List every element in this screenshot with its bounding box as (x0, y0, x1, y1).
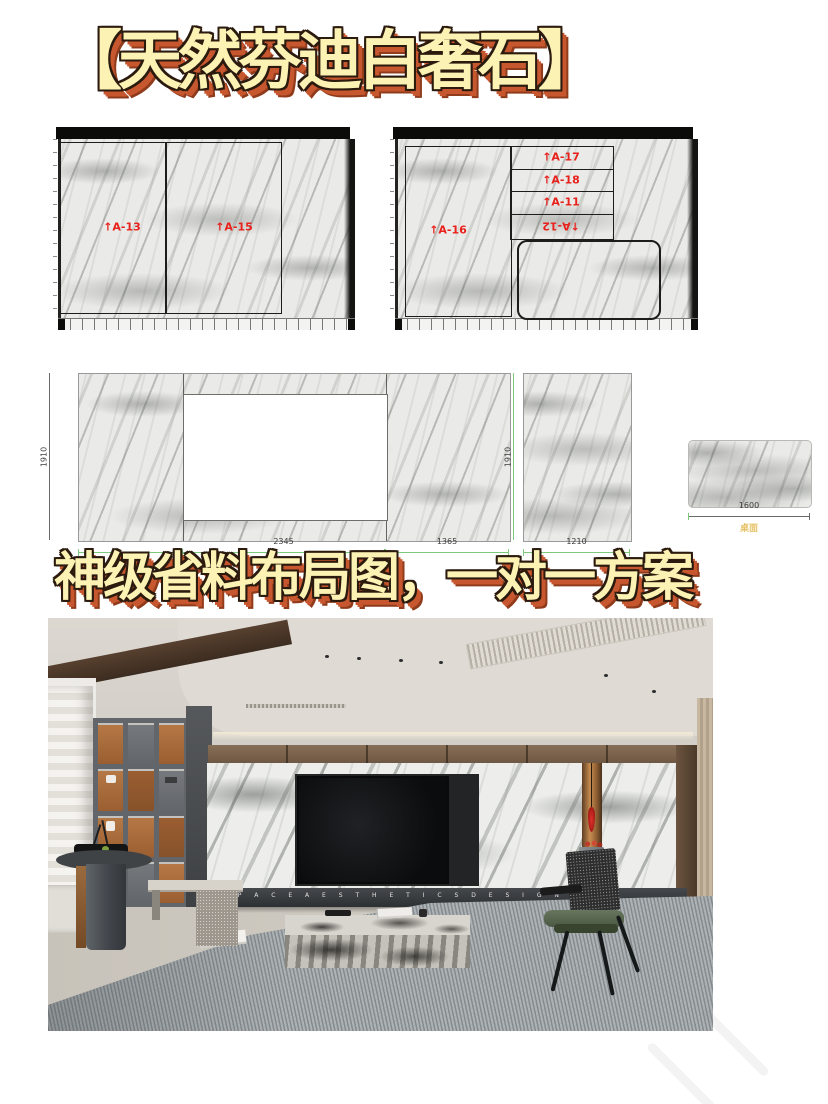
chair-leg (551, 930, 570, 991)
copper-panel (76, 866, 86, 948)
downlight (357, 657, 361, 660)
watermark (700, 1007, 770, 1077)
accent-chair (540, 850, 652, 1000)
shelf-cell (98, 769, 123, 810)
downlight (439, 661, 443, 664)
downlight (325, 655, 329, 658)
table-top-slab (688, 440, 812, 508)
shelf-ornament (165, 777, 177, 783)
ruler-left (385, 139, 394, 318)
shelf-ornament (106, 821, 115, 831)
living-room-photo: S P A C E A E S T H E T I C S D E S I G … (48, 618, 713, 1031)
cut-divider (165, 143, 167, 313)
stone-stool (196, 890, 238, 946)
piece-label: ↑A-16 (429, 224, 467, 237)
ruler-left (48, 139, 57, 318)
title-banner: 【天然芬迪白奢石】 (58, 30, 598, 94)
open-book (377, 907, 412, 919)
downlight (399, 659, 403, 662)
shelf-cell (159, 816, 184, 857)
chair-backrest (565, 848, 620, 914)
shelf-ornament (106, 775, 116, 783)
dim-text: 1910 (40, 446, 49, 466)
strip-label: ↑A-17 (542, 151, 580, 164)
shelf-cell (128, 769, 153, 810)
tv-wall-elevation (78, 373, 511, 542)
wood-panel-right (676, 745, 697, 911)
wood-band (208, 745, 695, 764)
strip-label: ↑A-11 (542, 196, 580, 209)
tray (325, 910, 351, 916)
ruler-bottom (58, 318, 355, 330)
downlight (652, 690, 656, 693)
chair-seat-frame (554, 924, 618, 933)
pendant-wire (591, 763, 592, 809)
shelf-cell (128, 723, 153, 764)
strip-label-rotated: ↑A-12 (542, 220, 580, 233)
tea-table-pedestal (86, 864, 126, 950)
table-object (419, 909, 427, 917)
downlight (604, 674, 608, 677)
curtain-right (697, 698, 713, 911)
cove-light (213, 732, 693, 740)
coffee-table (285, 915, 470, 968)
tv-screen (297, 776, 449, 884)
table-width-dimension: 1600 (688, 508, 810, 520)
slab-top-edge (393, 127, 693, 139)
piece-label: ↑A-13 (103, 221, 141, 234)
coffee-table-front (285, 935, 470, 968)
shelf-cell (159, 723, 184, 764)
shelf-cell (98, 723, 123, 764)
strip-label: ↑A-18 (542, 174, 580, 187)
tea-table (56, 840, 160, 950)
table-caption: 桌面 (740, 521, 758, 534)
page: 【天然芬迪白奢石】 ↑A-13 ↑A-15 ↑A-16 ↑A-17 ↑A-18 … (0, 0, 828, 1104)
slab-diagram-right: ↑A-16 ↑A-17 ↑A-18 ↑A-11 ↑A-12 (385, 125, 700, 332)
height-dimension-right: 1910 (508, 373, 520, 540)
slab-diagram-left: ↑A-13 ↑A-15 (48, 125, 355, 332)
dim-text: 1365 (437, 537, 457, 546)
subtitle-banner: 神级省料布局图，一对一方案 (54, 552, 691, 604)
linear-diffuser (246, 704, 346, 708)
tv-cutout (183, 394, 388, 521)
dim-text: 1910 (504, 446, 513, 466)
cut-outline-rounded (517, 240, 661, 320)
dim-text: 2345 (273, 537, 293, 546)
watermark (646, 1041, 716, 1104)
chair-leg (616, 915, 640, 973)
piece-label: ↑A-15 (215, 221, 253, 234)
slab-top-edge (56, 127, 350, 139)
dim-text: 1600 (739, 501, 759, 510)
chair-leg (597, 930, 615, 995)
dim-text: 1210 (566, 537, 586, 546)
shelf-cell (159, 769, 184, 810)
height-dimension-left: 1910 (44, 373, 56, 540)
side-panel-elevation (523, 373, 632, 542)
